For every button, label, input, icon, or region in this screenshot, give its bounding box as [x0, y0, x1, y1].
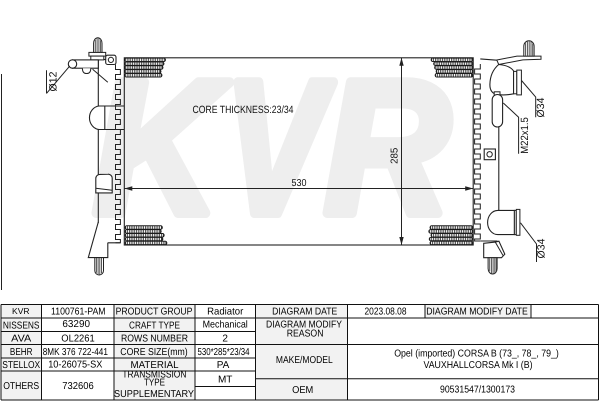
svg-text:Ø34: Ø34 — [535, 238, 547, 258]
svg-text:530*285*23/34: 530*285*23/34 — [197, 347, 249, 358]
svg-text:TYPE: TYPE — [144, 378, 165, 389]
svg-text:Ø12: Ø12 — [48, 71, 60, 91]
svg-text:Ø34: Ø34 — [535, 97, 547, 117]
svg-text:KVR: KVR — [12, 306, 29, 316]
svg-text:Opel (imported) CORSA B (73_,: Opel (imported) CORSA B (73_, 78_, 79_) — [394, 349, 559, 360]
svg-text:AVA: AVA — [11, 334, 31, 345]
svg-text:1100761-PAM: 1100761-PAM — [51, 307, 106, 318]
svg-text:CORE SIZE(mm): CORE SIZE(mm) — [120, 347, 187, 358]
svg-text:STELLOX: STELLOX — [2, 360, 40, 371]
svg-text:732606: 732606 — [62, 381, 94, 392]
svg-text:MAKE/MODEL: MAKE/MODEL — [276, 355, 333, 366]
svg-text:R: R — [324, 42, 450, 254]
svg-text:8MK 376 722-441: 8MK 376 722-441 — [43, 347, 109, 358]
svg-text:VAUXHALLCORSA Mk I (B): VAUXHALLCORSA Mk I (B) — [424, 360, 533, 371]
svg-text:BEHR: BEHR — [10, 347, 33, 358]
svg-text:2: 2 — [222, 334, 228, 345]
svg-text:63290: 63290 — [62, 319, 90, 330]
svg-text:Mechanical: Mechanical — [203, 320, 248, 331]
svg-text:CRAFT TYPE: CRAFT TYPE — [129, 320, 180, 331]
svg-text:530: 530 — [292, 178, 307, 189]
svg-text:10-26075-SX: 10-26075-SX — [48, 360, 102, 371]
svg-text:2023.08.08: 2023.08.08 — [365, 307, 407, 318]
svg-text:MT: MT — [218, 374, 232, 385]
svg-text:Radiator: Radiator — [207, 307, 244, 318]
svg-text:SUPPLEMENTARY: SUPPLEMENTARY — [114, 389, 194, 400]
svg-text:NISSENS: NISSENS — [3, 320, 40, 331]
svg-text:PRODUCT GROUP: PRODUCT GROUP — [116, 307, 193, 318]
svg-text:90531547/1300173: 90531547/1300173 — [440, 385, 515, 396]
svg-text:OEM: OEM — [292, 385, 313, 396]
svg-text:DIAGRAM DATE: DIAGRAM DATE — [272, 307, 337, 318]
svg-text:285: 285 — [390, 147, 401, 164]
svg-text:M22x1.5: M22x1.5 — [519, 117, 531, 154]
svg-text:OTHERS: OTHERS — [3, 381, 39, 392]
svg-text:PA: PA — [217, 360, 230, 371]
svg-text:REASON: REASON — [287, 329, 324, 340]
svg-text:OL2261: OL2261 — [61, 334, 95, 345]
svg-text:DIAGRAM MODIFY DATE: DIAGRAM MODIFY DATE — [426, 307, 528, 318]
svg-text:V: V — [225, 42, 334, 254]
svg-text:ROWS NUMBER: ROWS NUMBER — [121, 334, 188, 345]
svg-text:CORE THICKNESS:23/34: CORE THICKNESS:23/34 — [193, 104, 294, 116]
